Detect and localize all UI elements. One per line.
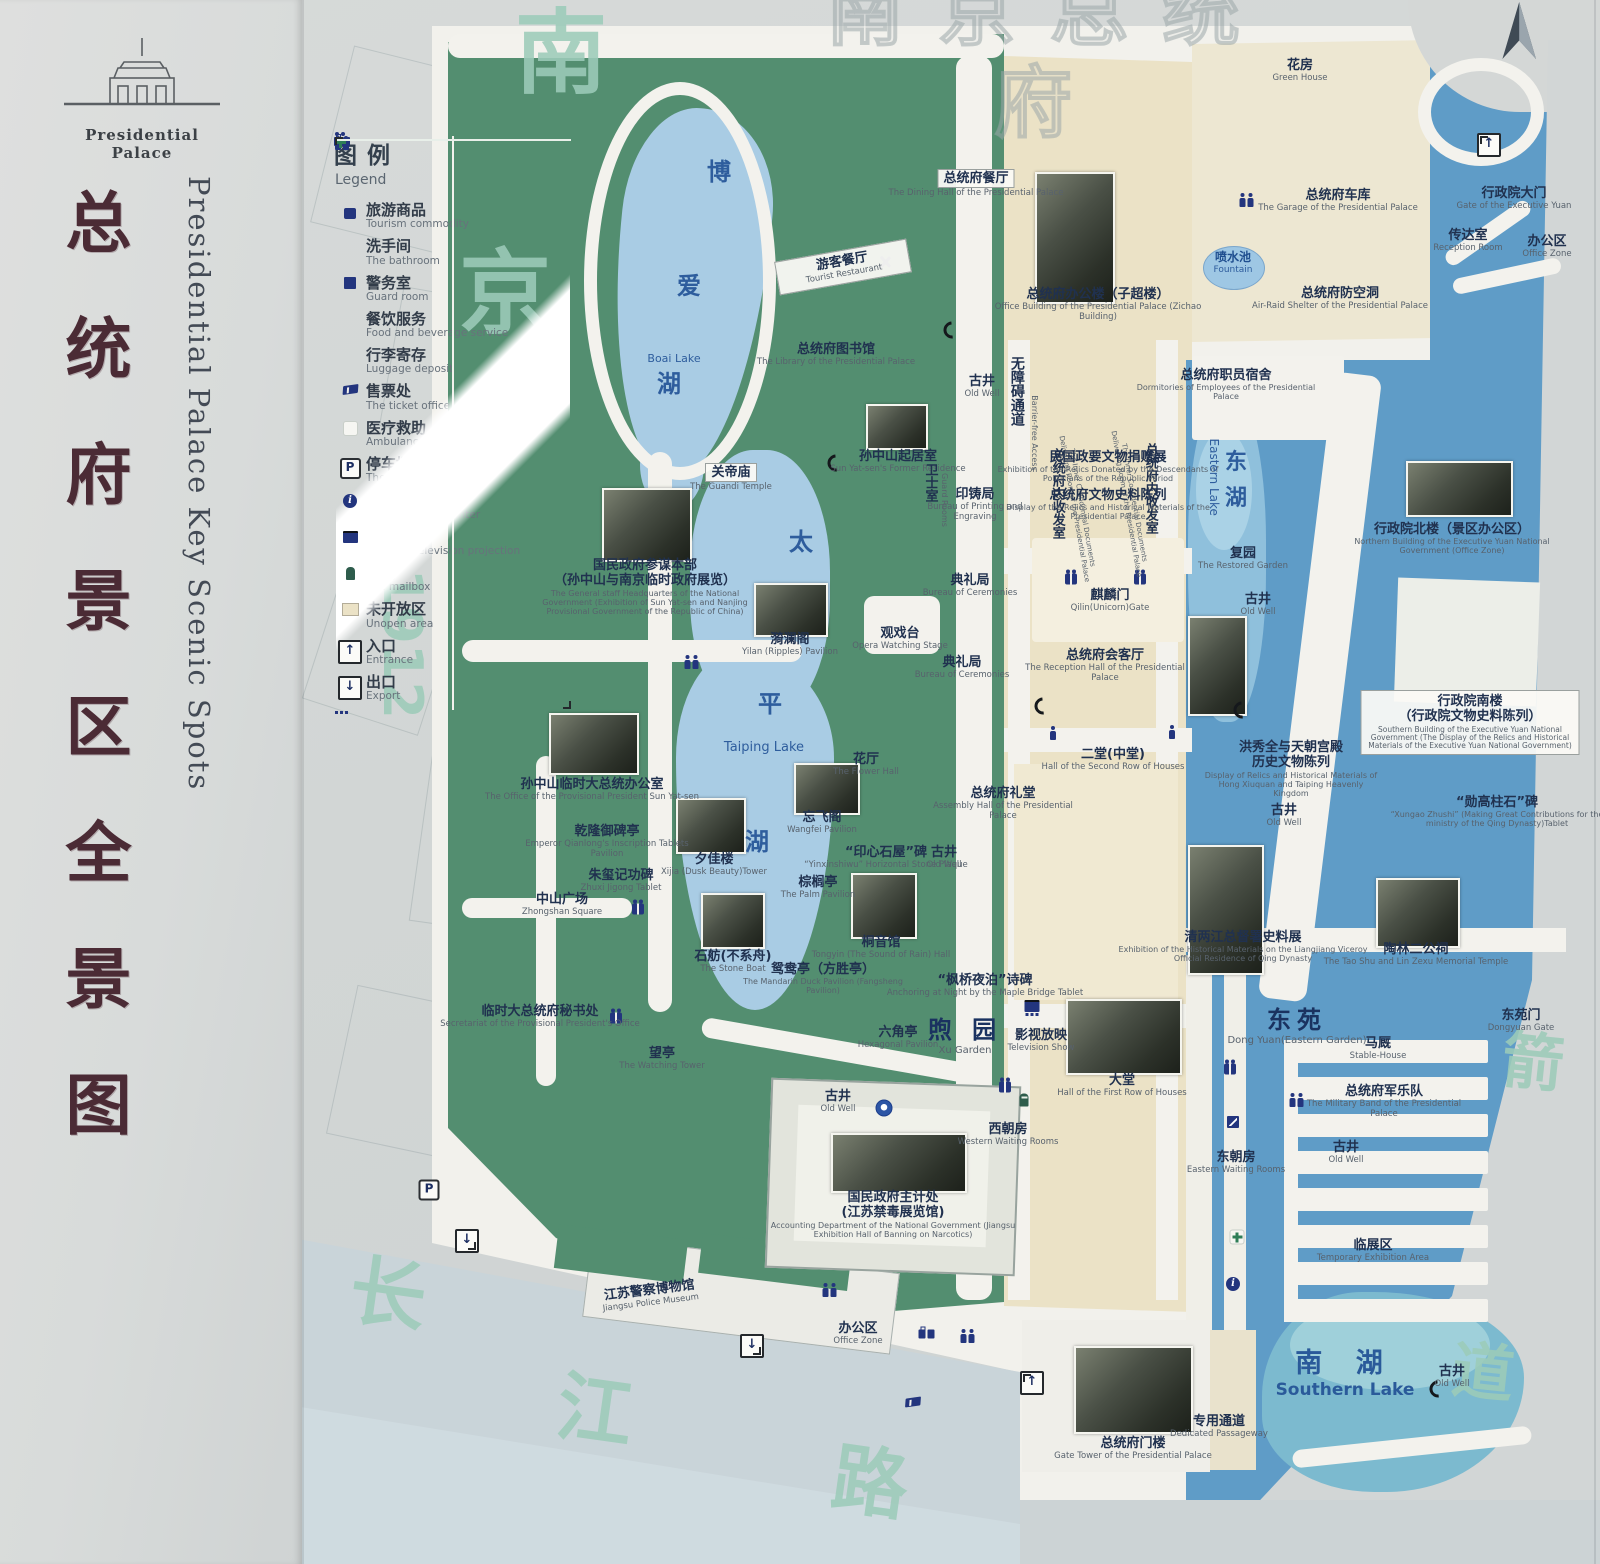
- relics-display: 总统府文物史料陈列Display of the Relics and Histo…: [991, 488, 1226, 522]
- library-cn: 总统府图书馆: [736, 342, 936, 357]
- television-show-en: Television Show: [984, 1044, 1099, 1054]
- guandi-temple: 关帝庙The Guandi Temple: [676, 461, 786, 493]
- taiping-hu-cn: 湖: [745, 828, 769, 856]
- temporary-exhibition-cn: 临展区: [1281, 1238, 1466, 1253]
- taiping-en-en: Taiping Lake: [714, 741, 814, 756]
- street-nan-cn: 南: [515, 0, 607, 109]
- hq-photo: [602, 488, 692, 562]
- palace-logo-text: Presidential Palace: [52, 126, 232, 162]
- east-lake-hu: 湖: [1225, 486, 1247, 512]
- military-band-en: The Military Band of the Presidential Pa…: [1302, 1100, 1467, 1119]
- door-in-icon: ↑: [1020, 1371, 1044, 1395]
- old-well-green-cn: 古井: [909, 845, 979, 860]
- sun-office-photo: [549, 713, 639, 775]
- taiping-tai-cn: 太: [789, 528, 813, 556]
- south-building-en: Southern Building of the Executive Yuan …: [1368, 726, 1573, 751]
- east-lake-dong-cn: 东: [1225, 450, 1247, 476]
- hong-xiuquan-display-cn: 洪秀全与天朝宫殿 历史文物陈列: [1202, 740, 1380, 771]
- library: 总统府图书馆The Library of the Presidential Pa…: [736, 342, 936, 368]
- reception-room-en: Reception Room: [1418, 244, 1518, 254]
- temporary-exhibition-en: Temporary Exhibition Area: [1281, 1254, 1466, 1264]
- wc-icon: [822, 1283, 839, 1297]
- left-title-panel: Presidential Palace 总统府景区全景图 Presidentia…: [0, 0, 302, 1564]
- path: [536, 756, 556, 1086]
- fountain-en: Fountain: [1213, 265, 1252, 275]
- yilan-pavilion: 漪澜阁Yilan (Ripples) Pavilion: [723, 632, 858, 658]
- taiping-en: Taiping Lake: [714, 740, 814, 756]
- relics-display-cn: 总统府文物史料陈列: [991, 488, 1226, 503]
- street-jiang-cn: 江: [551, 1361, 639, 1460]
- board-title-chinese: 总统府景区全景图: [52, 188, 135, 1196]
- dormitories: 总统府职员宿舍Dormitories of Employees of the P…: [1134, 368, 1319, 402]
- taolin-temple-en: The Tao Shu and Lin Zexu Memorial Temple: [1304, 958, 1529, 968]
- air-raid-shelter: 总统府防空洞Air-Raid Shelter of the Presidenti…: [1218, 286, 1463, 312]
- hall-first-row-cn: 大堂: [1025, 1073, 1220, 1088]
- east-lake-hu-cn: 湖: [1225, 486, 1247, 512]
- boai-hu-cn: 湖: [657, 370, 681, 398]
- stable-house-cn: 马厩: [1323, 1036, 1433, 1051]
- old-well-south-en: Old Well: [1417, 1380, 1487, 1390]
- taiping-tai: 太: [789, 528, 813, 556]
- sun-office: 孙中山临时大总统办公室The Office of the Provisional…: [460, 777, 725, 803]
- fountain: 喷水池Fountain: [1213, 250, 1252, 275]
- hall-first-row: 大堂Hall of the First Row of Houses: [1025, 1073, 1220, 1099]
- temporary-exhibition: 临展区Temporary Exhibition Area: [1281, 1238, 1466, 1264]
- taolin-temple: 陶林二公祠The Tao Shu and Lin Zexu Memorial T…: [1304, 942, 1529, 968]
- board-title-english: Presidential Palace Key Scenic Spots: [182, 176, 216, 791]
- old-well-hong: 古井Old Well: [1249, 803, 1319, 829]
- old-well-hong-en: Old Well: [1249, 819, 1319, 829]
- south-building: 行政院南楼 （行政院文物史料陈列）Southern Building of th…: [1361, 690, 1580, 755]
- office-zone-south-cn: 办公区: [811, 1321, 906, 1336]
- reception-hall: 总统府会客厅The Reception Hall of the Presiden…: [1018, 648, 1193, 683]
- relics-donated: 民国政要文物捐赠展Exhibition of the Relics Donate…: [981, 450, 1236, 484]
- wc-icon: [684, 655, 701, 669]
- zichao-building-en: Office Building of the Presidential Pala…: [976, 303, 1221, 322]
- watching-tower-cn: 望亭: [600, 1046, 725, 1061]
- air-raid-shelter-en: Air-Raid Shelter of the Presidential Pal…: [1218, 302, 1463, 312]
- watching-tower: 望亭The Watching Tower: [600, 1046, 725, 1072]
- old-well-accounting: 古井Old Well: [803, 1089, 873, 1115]
- ghost-top-cn: 南京总统府: [775, 0, 1325, 150]
- eastern-waiting: 东朝房Eastern Waiting Rooms: [1159, 1150, 1314, 1176]
- dining-hall: 总统府餐厅The Dining Hall of the Presidential…: [884, 167, 1069, 199]
- old-well-green-en: Old Well: [909, 861, 979, 871]
- flower-hall: 花厅The Flower Hall: [816, 752, 916, 778]
- old-well-hong-cn: 古井: [1249, 803, 1319, 818]
- ceremonies-2-en: Bureau of Ceremonies: [905, 671, 1020, 681]
- east-lake-en-en: Eastern Lake: [1207, 432, 1220, 522]
- tongyin-hall-en: Tongyin (The Sound of Rain) Hall: [799, 951, 964, 961]
- door-out-icon: ↓: [455, 1229, 479, 1253]
- guard-icon: [1227, 1116, 1239, 1128]
- zhongshan-square-cn: 中山广场: [500, 892, 625, 907]
- guandi-temple-cn: 关帝庙: [705, 463, 756, 482]
- xungao-tablet: “勋高柱石”碑“Xungao Zhushi” (Making Great Con…: [1390, 795, 1600, 829]
- qianlong-pavilion-cn: 乾隆御碑亭: [525, 824, 690, 839]
- food-icon: [343, 313, 357, 327]
- palm-pavilion-en: The Palm Pavilion: [763, 891, 873, 901]
- lugg-icon: [342, 349, 359, 360]
- secretariat: 临时大总统府秘书处Secretariat of the Provisional …: [413, 1004, 668, 1030]
- legend-item-guard-room: 警务室Guard room: [334, 275, 572, 304]
- reception-room: 传达室Reception Room: [1418, 228, 1518, 254]
- air-raid-shelter-cn: 总统府防空洞: [1218, 286, 1463, 301]
- accounting-dept-cn: 国民政府主计处 (江苏禁毒展览馆): [766, 1190, 1021, 1221]
- dongyuan-gate: 东苑门Dongyuan Gate: [1466, 1008, 1576, 1034]
- old-well-band: 古井Old Well: [1311, 1140, 1381, 1166]
- north-building: 行政院北楼（景区办公区）Northern Building of the Exe…: [1330, 522, 1575, 556]
- wangfei-pavilion: 忘飞阁Wangfei Pavilion: [767, 810, 877, 836]
- wc-icon: [960, 1329, 977, 1343]
- street-nan: 南: [515, 0, 607, 109]
- guard-icon: [334, 275, 366, 289]
- panel-fold: [302, 0, 304, 1564]
- secretariat-cn: 临时大总统府秘书处: [413, 1004, 668, 1019]
- palace-building-icon: [54, 34, 230, 120]
- television-show-cn: 影视放映: [984, 1028, 1099, 1043]
- film-icon: [343, 531, 358, 543]
- stable-house: 马厩Stable-House: [1323, 1036, 1433, 1062]
- street-chang: 长: [344, 1245, 432, 1344]
- street-lu-cn: 路: [826, 1433, 914, 1532]
- dedicated-passageway: 专用通道Dedicated Passageway: [1152, 1414, 1287, 1440]
- wangfei-pavilion-en: Wangfei Pavilion: [767, 826, 877, 836]
- east-corridor-blue: [1212, 960, 1224, 1330]
- ceremonies-1-cn: 典礼局: [913, 573, 1028, 588]
- dongyuan-gate-en: Dongyuan Gate: [1466, 1024, 1576, 1034]
- palm-pavilion: 棕榈亭The Palm Pavilion: [763, 875, 873, 901]
- info-icon: i: [1226, 1277, 1240, 1291]
- xijia-tower: 夕佳楼Xijia (Dusk Beauty)Tower: [632, 852, 797, 878]
- office-zone-south-en: Office Zone: [811, 1337, 906, 1347]
- old-well-fuyuan-en: Old Well: [1223, 608, 1293, 618]
- southern-lake: 南 湖Southern Lake: [1276, 1348, 1415, 1400]
- street-chang-cn: 长: [344, 1245, 432, 1344]
- wangfei-pavilion-cn: 忘飞阁: [767, 810, 877, 825]
- north-building-cn: 行政院北楼（景区办公区）: [1330, 522, 1575, 537]
- assembly-hall-cn: 总统府礼堂: [921, 786, 1086, 801]
- restored-garden-cn: 复园: [1181, 546, 1306, 561]
- logo-icon: [876, 1100, 893, 1117]
- accounting-dept: 国民政府主计处 (江苏禁毒展览馆)Accounting Department o…: [766, 1190, 1021, 1240]
- sun-residence-photo: [866, 404, 928, 450]
- compass-north-arrow: [1488, 2, 1548, 64]
- maple-tablet-en: Anchoring at Night by the Maple Bridge T…: [863, 989, 1108, 999]
- door-in-icon: ↑: [334, 638, 366, 664]
- flower-hall-en: The Flower Hall: [816, 768, 916, 778]
- accounting-dept-en: Accounting Department of the National Go…: [766, 1222, 1021, 1240]
- palace-logo: Presidential Palace: [52, 34, 232, 162]
- guard-rooms: 卫士室: [921, 463, 938, 506]
- office-zone-ne-en: Office Zone: [1505, 250, 1590, 260]
- boai-en-en: Boai Lake: [634, 353, 714, 365]
- western-waiting-en: Western Waiting Rooms: [936, 1138, 1081, 1148]
- old-well-band-cn: 古井: [1311, 1140, 1381, 1155]
- guard-rooms-en: Guard Rooms: [939, 460, 949, 540]
- zhongshan-square: 中山广场Zhongshan Square: [500, 892, 625, 918]
- door-in-icon: ↑: [338, 640, 362, 664]
- relics-display-en: Display of the Relics and Historical Mat…: [991, 504, 1226, 522]
- relics-donated-en: Exhibition of the Relics Donated by the …: [981, 466, 1236, 484]
- guandi-temple-en: The Guandi Temple: [676, 483, 786, 493]
- southern-lake-en: Southern Lake: [1276, 1381, 1415, 1400]
- comb-bar: [1292, 1262, 1488, 1285]
- street-jian-cn: 箭: [1498, 1023, 1567, 1102]
- door-out-icon: ↓: [338, 676, 362, 700]
- military-band-cn: 总统府军乐队: [1302, 1084, 1467, 1099]
- taolin-photo: [1376, 878, 1460, 948]
- stable-house-en: Stable-House: [1323, 1052, 1433, 1062]
- military-band: 总统府军乐队The Military Band of the President…: [1302, 1084, 1467, 1119]
- green-house: 花房Green House: [1245, 58, 1355, 84]
- hall-first-row-en: Hall of the First Row of Houses: [1025, 1089, 1220, 1099]
- old-well-south-cn: 古井: [1417, 1364, 1487, 1379]
- unopen-icon: [342, 603, 359, 616]
- relics-donated-cn: 民国政要文物捐赠展: [981, 450, 1236, 465]
- office-zone-south: 办公区Office Zone: [811, 1321, 906, 1347]
- reception-hall-cn: 总统府会客厅: [1018, 648, 1193, 663]
- taiping-ping: 平: [758, 690, 782, 718]
- old-well-band-en: Old Well: [1311, 1156, 1381, 1166]
- eastern-waiting-en: Eastern Waiting Rooms: [1159, 1166, 1314, 1176]
- eastern-waiting-cn: 东朝房: [1159, 1150, 1314, 1165]
- boai-bo: 博: [707, 158, 731, 186]
- library-en: The Library of the Presidential Palace: [736, 358, 936, 368]
- hong-xiuquan-display: 洪秀全与天朝宫殿 历史文物陈列Display of Relics and His…: [1202, 740, 1380, 799]
- reception-room-cn: 传达室: [1418, 228, 1518, 243]
- xungao-tablet-cn: “勋高柱石”碑: [1390, 795, 1600, 810]
- sun-office-cn: 孙中山临时大总统办公室: [460, 777, 725, 792]
- television-show: 影视放映Television Show: [984, 1028, 1099, 1054]
- ceremonies-1: 典礼局Bureau of Ceremonies: [913, 573, 1028, 599]
- fountain-cn: 喷水池: [1213, 250, 1252, 264]
- assembly-hall-en: Assembly Hall of the Presidential Palace: [921, 802, 1086, 821]
- boai-en: Boai Lake: [634, 352, 714, 365]
- dormitories-cn: 总统府职员宿舍: [1134, 368, 1319, 383]
- qilin-gate: 麒麟门Qilin(Unicorn)Gate: [1038, 588, 1183, 614]
- legend: 图例 Legend 旅游商品Tourism commodity洗手间The ba…: [334, 136, 572, 710]
- zichao-building-cn: 总统府办公楼（子超楼）: [976, 287, 1221, 302]
- guard-rooms-cn: 卫士室: [921, 463, 938, 502]
- dedicated-passageway-en: Dedicated Passageway: [1152, 1430, 1287, 1440]
- old-well-green: 古井Old Well: [909, 845, 979, 871]
- taiping-hu: 湖: [745, 828, 769, 856]
- ceremonies-2-cn: 典礼局: [905, 655, 1020, 670]
- green-house-en: Green House: [1245, 74, 1355, 84]
- garage: 总统府车库The Garage of the Presidential Pala…: [1226, 188, 1451, 214]
- north-building-photo: [1406, 461, 1513, 517]
- hong-xiuquan-display-en: Display of Relics and Historical Materia…: [1202, 772, 1380, 799]
- map-board: 南京总统府南京1912长江路箭道总统府餐厅The Dining Hall of …: [0, 0, 1600, 1564]
- garage-en: The Garage of the Presidential Palace: [1226, 204, 1451, 214]
- secretariat-en: Secretariat of the Provisional President…: [413, 1020, 668, 1030]
- guard-rooms-en-en: Guard Rooms: [939, 460, 948, 540]
- gate-tower-en: Gate Tower of the Presidential Palace: [1016, 1452, 1251, 1462]
- barrier-free: 无障碍通道: [1005, 356, 1027, 430]
- barrier-free-cn: 无障碍通道: [1005, 356, 1027, 426]
- watching-tower-en: The Watching Tower: [600, 1062, 725, 1072]
- east-lake-dong: 东: [1225, 450, 1247, 476]
- yilan-photo: [754, 583, 828, 637]
- qilin-gate-cn: 麒麟门: [1038, 588, 1183, 603]
- dong-yuan-cn: 东苑: [1227, 1006, 1366, 1034]
- north-building-en: Northern Building of the Executive Yuan …: [1330, 538, 1575, 556]
- western-waiting-cn: 西朝房: [936, 1122, 1081, 1137]
- dongyuan-gate-cn: 东苑门: [1466, 1008, 1576, 1023]
- flower-hall-cn: 花厅: [816, 752, 916, 767]
- gate-tower: 总统府门楼Gate Tower of the Presidential Pala…: [1016, 1436, 1251, 1462]
- southern-lake-cn: 南 湖: [1276, 1348, 1415, 1380]
- hall-second-row-en: Hall of the Second Row of Houses: [1011, 763, 1216, 773]
- taiping-ping-cn: 平: [758, 690, 782, 718]
- zhongshan-square-en: Zhongshan Square: [500, 908, 625, 918]
- ceremonies-1-en: Bureau of Ceremonies: [913, 589, 1028, 599]
- comb-bar: [1292, 1299, 1488, 1322]
- medic-icon: [1231, 1231, 1244, 1244]
- dedicated-passageway-cn: 专用通道: [1152, 1414, 1287, 1429]
- yilan-pavilion-cn: 漪澜阁: [723, 632, 858, 647]
- legend-list: 旅游商品Tourism commodity洗手间The bathroom警务室G…: [334, 202, 572, 703]
- door-out-icon: ↓: [740, 1334, 764, 1358]
- guard-icon: [344, 277, 356, 289]
- street-jiang: 江: [551, 1361, 639, 1460]
- assembly-hall: 总统府礼堂Assembly Hall of the Presidential P…: [921, 786, 1086, 821]
- green-house-cn: 花房: [1245, 58, 1355, 73]
- hall-second-row: 二堂(中堂)Hall of the Second Row of Houses: [1011, 747, 1216, 773]
- panel-fold: [1594, 0, 1596, 1564]
- ghost-top: 南京总统府: [775, 0, 1325, 150]
- door-in-icon: ↑: [1477, 133, 1501, 157]
- maple-tablet-cn: “枫桥夜泊”诗碑: [863, 973, 1108, 988]
- boai-ai-cn: 爱: [677, 272, 701, 300]
- tongyin-hall: 桐音馆Tongyin (The Sound of Rain) Hall: [799, 935, 964, 961]
- film-icon: [1025, 1000, 1040, 1012]
- executive-yuan-gate: 行政院大门Gate of the Executive Yuan: [1437, 186, 1592, 212]
- executive-yuan-gate-en: Gate of the Executive Yuan: [1437, 202, 1592, 212]
- sun-office-en: The Office of the Provisional President …: [460, 793, 725, 803]
- comb-bar: [1292, 1188, 1488, 1211]
- street-lu: 路: [826, 1433, 914, 1532]
- ceremonies-2: 典礼局Bureau of Ceremonies: [905, 655, 1020, 681]
- old-well-accounting-cn: 古井: [803, 1089, 873, 1104]
- maple-tablet: “枫桥夜泊”诗碑Anchoring at Night by the Maple …: [863, 973, 1108, 999]
- zichao-building: 总统府办公楼（子超楼）Office Building of the Presid…: [976, 287, 1221, 322]
- dormitories-en: Dormitories of Employees of the Presiden…: [1134, 384, 1319, 402]
- old-well-south: 古井Old Well: [1417, 1364, 1487, 1390]
- sun-residence-en: Sun Yat-sen's Former Residence: [811, 465, 986, 475]
- dining-hall-en: The Dining Hall of the Presidential Pala…: [884, 189, 1069, 199]
- door-out-icon: ↓: [334, 674, 366, 700]
- western-waiting: 西朝房Western Waiting Rooms: [936, 1122, 1081, 1148]
- hall-second-row-cn: 二堂(中堂): [1011, 747, 1216, 762]
- reception-hall-en: The Reception Hall of the Presidential P…: [1018, 664, 1193, 683]
- xijia-tower-cn: 夕佳楼: [632, 852, 797, 867]
- sun-residence-cn: 孙中山起居室: [811, 449, 986, 464]
- south-building-cn: 行政院南楼 （行政院文物史料陈列）: [1368, 694, 1573, 725]
- sun-residence: 孙中山起居室Sun Yat-sen's Former Residence: [811, 449, 986, 475]
- office-zone-ne-cn: 办公区: [1505, 234, 1590, 249]
- boai-hu: 湖: [657, 370, 681, 398]
- park-icon: P: [340, 458, 361, 479]
- executive-yuan-gate-cn: 行政院大门: [1437, 186, 1592, 201]
- old-well-fuyuan: 古井Old Well: [1223, 592, 1293, 618]
- office-zone-ne: 办公区Office Zone: [1505, 234, 1590, 260]
- pp-icon: [1168, 725, 1176, 739]
- gift-icon: [1065, 574, 1077, 585]
- qilin-gate-en: Qilin(Unicorn)Gate: [1038, 604, 1183, 614]
- xungao-tablet-en: “Xungao Zhushi” (Making Great Contributi…: [1390, 811, 1600, 829]
- gift-icon: [999, 1082, 1011, 1093]
- gift-icon: [632, 904, 644, 915]
- old-well-fuyuan-cn: 古井: [1223, 592, 1293, 607]
- restored-garden: 复园The Restored Garden: [1181, 546, 1306, 572]
- east-lake-en: Eastern Lake: [1207, 432, 1221, 522]
- old-well-accounting-en: Old Well: [803, 1105, 873, 1115]
- garage-cn: 总统府车库: [1226, 188, 1451, 203]
- medic-icon: [344, 422, 357, 435]
- park-icon: P: [419, 1180, 440, 1201]
- restored-garden-en: The Restored Garden: [1181, 562, 1306, 572]
- lugg-icon: [919, 1329, 936, 1340]
- mail-icon: [346, 567, 355, 580]
- street-jian: 箭: [1498, 1023, 1567, 1102]
- pp-icon: [1049, 726, 1057, 740]
- palm-pavilion-cn: 棕榈亭: [763, 875, 873, 890]
- boai-bo-cn: 博: [707, 158, 731, 186]
- xungao-plaza: [1394, 578, 1540, 707]
- gift-icon: [1224, 1064, 1236, 1075]
- dining-hall-cn: 总统府餐厅: [937, 169, 1014, 188]
- stone-boat-photo: [701, 893, 765, 949]
- tongyin-hall-cn: 桐音馆: [799, 935, 964, 950]
- yilan-pavilion-en: Yilan (Ripples) Pavilion: [723, 648, 858, 658]
- taolin-temple-cn: 陶林二公祠: [1304, 942, 1529, 957]
- boai-ai: 爱: [677, 272, 701, 300]
